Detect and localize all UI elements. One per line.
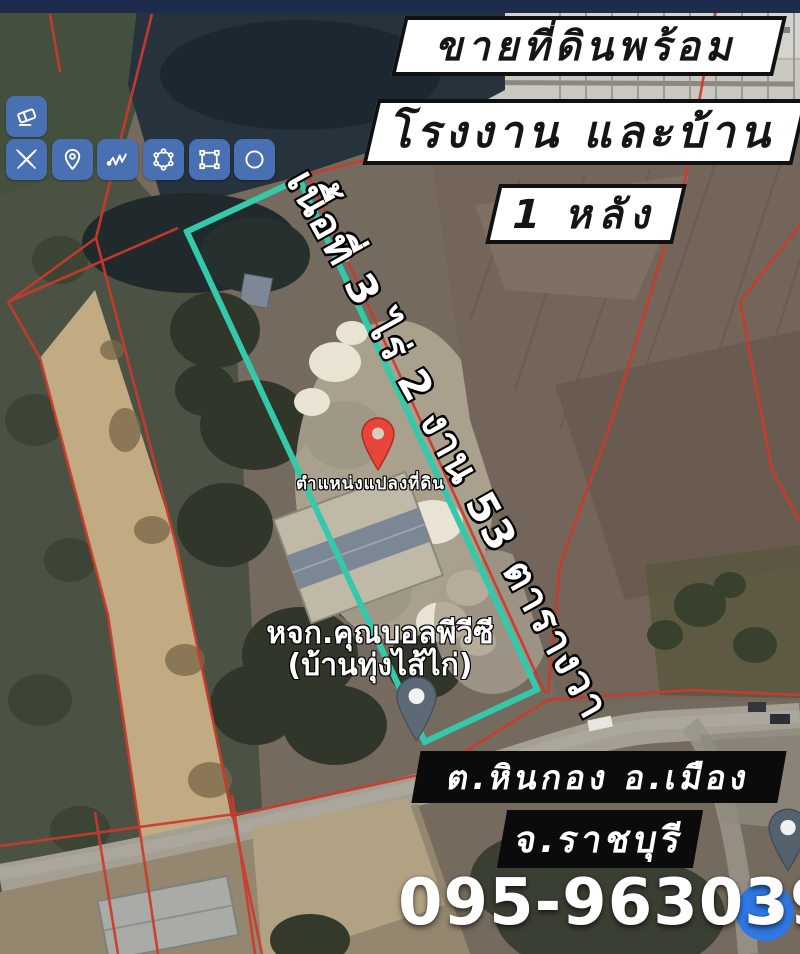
tool-pin-button[interactable] [52,139,93,180]
crossed-pencils-icon [13,146,40,173]
poi-pin-grey[interactable] [393,676,440,742]
location-dot-highlight [768,905,779,916]
tool-rectangle-button[interactable] [189,139,230,180]
footer-province-box: จ.ราชบุรี [497,810,703,868]
plot-position-label: ตำแหน่งแปลงที่ดิน [278,470,463,497]
footer-district-box: ต.หินกอง อ.เมือง [411,751,786,803]
map-pin-icon [59,146,86,173]
phone-number: 095-9630395 [398,866,800,940]
banner-sale-line3-text: 1 หลัง [505,182,667,246]
eraser-icon [13,103,40,130]
district-text: ต.หินกอง อ.เมือง [443,751,755,804]
tool-eraser-button[interactable] [6,96,47,137]
tool-polyline-button[interactable] [97,139,138,180]
banner-sale-line1-text: ขายที่ดินพร้อม [431,14,747,78]
banner-sale-line3: 1 หลัง [485,184,687,244]
business-name-line2: (บ้านทุ่งไส้ไก่) [240,650,520,682]
province-text: จ.ราชบุรี [510,811,689,868]
poi-pin-grey-edge[interactable] [764,808,800,872]
business-place-label: หจก.คุณบอลพีวีซี (บ้านทุ่งไส้ไก่) [240,618,520,683]
banner-sale-line1: ขายที่ดินพร้อม [391,16,787,76]
rectangle-select-icon [196,146,223,173]
business-name-line1: หจก.คุณบอลพีวีซี [240,618,520,650]
tool-circle-button[interactable] [234,139,275,180]
tool-draw-button[interactable] [6,139,47,180]
tool-polygon-button[interactable] [143,139,184,180]
red-location-pin[interactable] [361,417,395,471]
top-bar [0,0,800,13]
banner-sale-line2-text: โรงงาน และบ้าน [383,97,786,167]
listing-screenshot: เนื้อที่ 3 ไร่ 2 งาน 53 ตารางวา ตำแหน่งแ… [0,0,800,954]
circle-icon [241,146,268,173]
polyline-icon [104,146,131,173]
polygon-icon [150,146,177,173]
banner-sale-line2: โรงงาน และบ้าน [362,99,800,165]
